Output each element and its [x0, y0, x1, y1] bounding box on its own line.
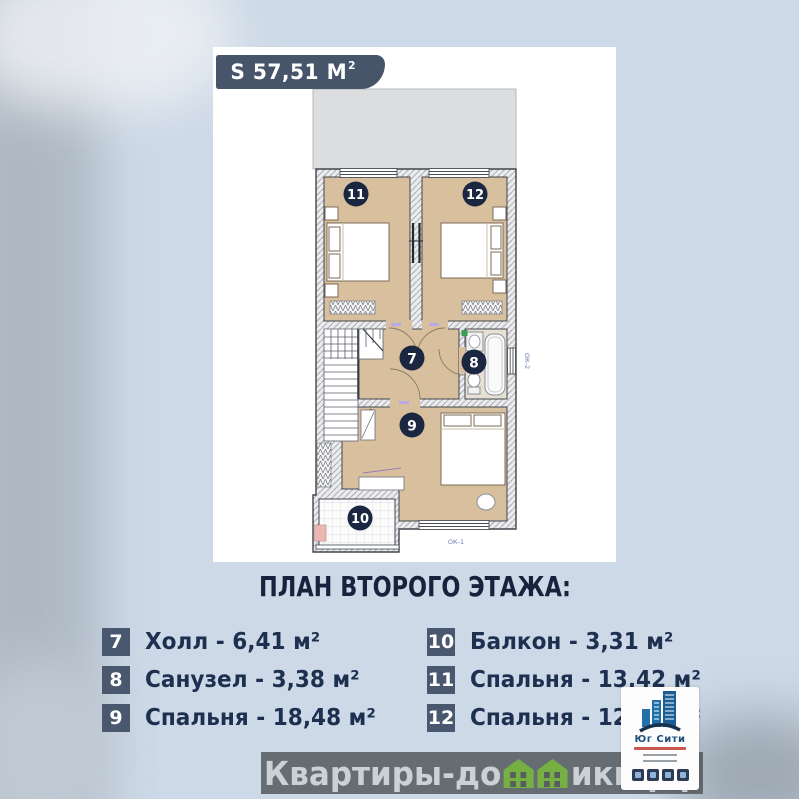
logo-detail-line — [643, 754, 677, 756]
pillow — [474, 415, 501, 426]
legend-row-bedroom-11: 11 Спальня - 13,42 м² — [427, 665, 757, 695]
legend-right-column: 10 Балкон - 3,31 м² 11 Спальня - 13,42 м… — [427, 627, 757, 741]
flyer-page: 11 12 7 8 9 10 ОК-1 ОК-2 S 57,51 М2 П — [0, 0, 799, 799]
chair — [477, 494, 495, 510]
legend-num-12: 12 — [427, 704, 455, 732]
room-11-number: 11 — [347, 188, 365, 203]
agency-logo: Юг Сити — [621, 687, 699, 790]
toilet — [468, 373, 480, 387]
pillow — [491, 226, 501, 249]
room-8-number: 8 — [469, 356, 479, 372]
social-icon — [662, 769, 674, 781]
room-7-number: 7 — [407, 352, 417, 368]
social-icon — [647, 769, 659, 781]
floorplan-card: 11 12 7 8 9 10 ОК-1 ОК-2 S 57,51 М2 — [213, 47, 616, 562]
floorplan-drawing: 11 12 7 8 9 10 ОК-1 ОК-2 — [213, 47, 616, 562]
legend-left-column: 7 Холл - 6,41 м² 8 Санузел - 3,38 м² 9 С… — [102, 627, 432, 741]
page-title: ПЛАН ВТОРОГО ЭТАЖА: — [213, 570, 616, 603]
door-mark-1 — [391, 323, 401, 326]
legend-num-10: 10 — [427, 628, 455, 656]
legend-row-balcony: 10 Балкон - 3,31 м² — [427, 627, 757, 657]
nightstand — [325, 284, 338, 297]
nightstand — [493, 207, 506, 220]
houses-icon — [502, 756, 570, 790]
area-badge-text: S 57,51 М — [230, 60, 347, 84]
area-badge-sup: 2 — [348, 60, 356, 71]
pillow — [329, 254, 340, 278]
room-10-number: 10 — [351, 512, 369, 527]
legend-num-8: 8 — [102, 666, 130, 694]
legend-label-hall: Холл - 6,41 м² — [145, 629, 320, 655]
window-label-ok2: ОК-2 — [523, 353, 531, 369]
social-icon — [677, 769, 689, 781]
logo-red-tagline — [634, 747, 686, 750]
legend-label-bathroom: Санузел - 3,38 м² — [145, 667, 360, 693]
background-blur-topleft — [0, 0, 230, 110]
legend-label-balcony: Балкон - 3,31 м² — [470, 629, 673, 655]
legend-row-bedroom-9: 9 Спальня - 18,48 м² — [102, 703, 432, 733]
logo-detail-line — [643, 760, 677, 762]
dresser — [359, 477, 404, 490]
nightstand — [493, 280, 506, 293]
background-blur-bottomleft — [0, 660, 110, 799]
pillow — [329, 227, 340, 251]
balcony-corner-detail — [314, 525, 326, 541]
room-9-number: 9 — [407, 419, 417, 435]
legend-num-9: 9 — [102, 704, 130, 732]
watermark-part1: Квартиры-до — [264, 754, 501, 793]
door-mark-3 — [399, 401, 409, 404]
logo-social-icons — [632, 769, 689, 781]
legend-row-bedroom-12: 12 Спальня - 12,51 м² — [427, 703, 757, 733]
legend-row-hall: 7 Холл - 6,41 м² — [102, 627, 432, 657]
legend-num-11: 11 — [427, 666, 455, 694]
radiator-12 — [462, 301, 502, 314]
room-12-number: 12 — [466, 188, 484, 203]
window-label-ok1: ОК-1 — [448, 538, 464, 546]
door-mark-2 — [429, 323, 439, 326]
agency-name: Юг Сити — [634, 734, 685, 745]
pillow — [491, 252, 501, 275]
legend-num-7: 7 — [102, 628, 130, 656]
legend-label-bedroom-9: Спальня - 18,48 м² — [145, 705, 376, 731]
nightstand — [325, 207, 338, 220]
social-icon — [632, 769, 644, 781]
legend-row-bathroom: 8 Санузел - 3,38 м² — [102, 665, 432, 695]
radiator-11 — [330, 301, 375, 314]
pillow — [444, 415, 471, 426]
building-icon — [638, 687, 682, 733]
washer-mark — [462, 330, 468, 336]
area-badge: S 57,51 М2 — [216, 55, 385, 89]
roof-area — [313, 89, 516, 169]
